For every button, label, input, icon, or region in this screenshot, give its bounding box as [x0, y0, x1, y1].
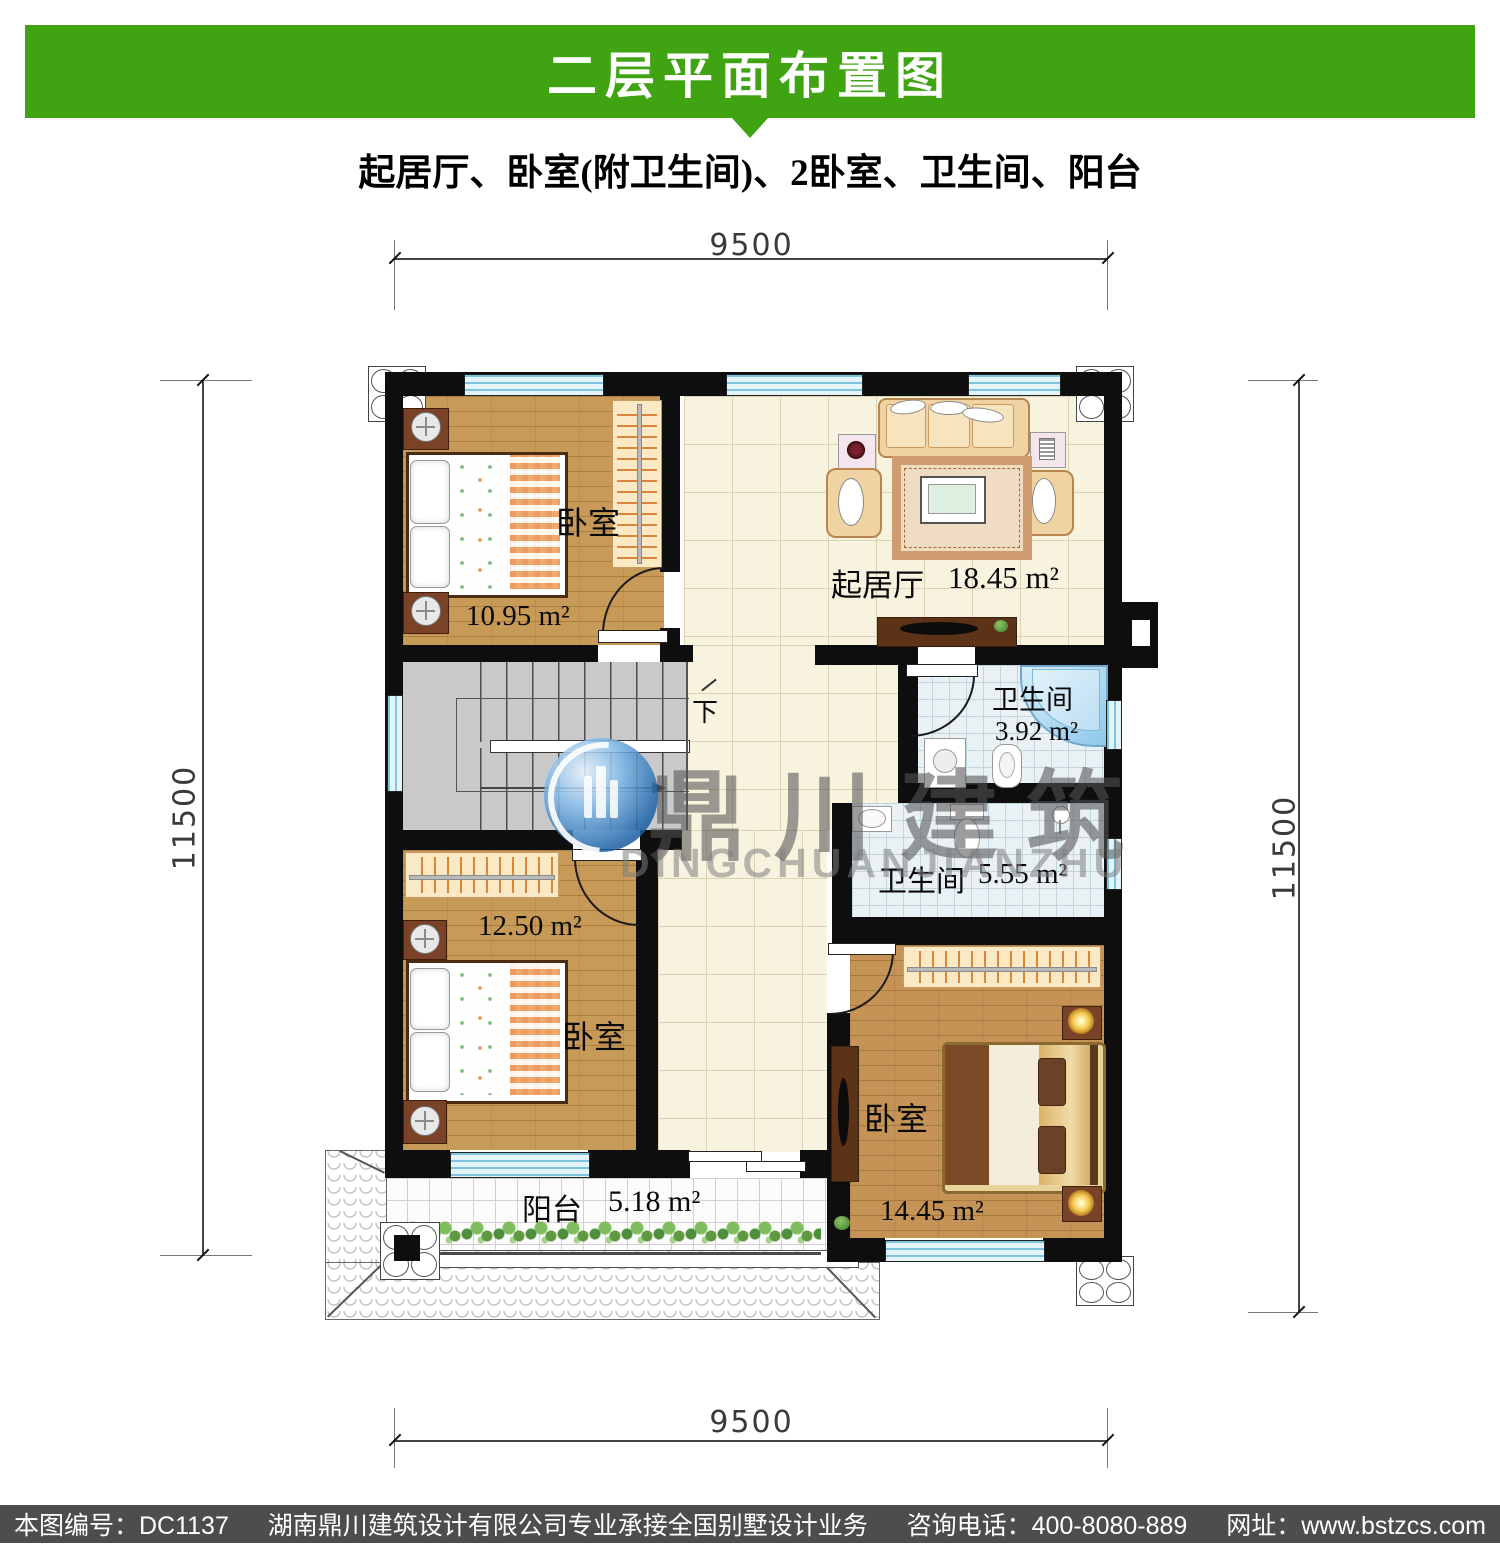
plant-icon	[834, 1216, 850, 1230]
lamp-icon	[411, 596, 441, 626]
door-leaf-bathroom-small	[906, 664, 978, 677]
wall-bedroom3-top	[832, 917, 1122, 945]
dim-ext	[1248, 380, 1318, 381]
header-pointer-triangle	[732, 118, 768, 138]
watermark-logo-building	[610, 780, 618, 818]
wardrobe-rod	[907, 967, 1097, 972]
lamp-glow-icon	[1068, 1008, 1094, 1034]
lamp-icon	[410, 1106, 440, 1136]
wardrobe-bedroom3	[903, 946, 1101, 988]
door-leaf-bedroom1	[598, 630, 668, 643]
label-bedroom2-area: 12.50 m²	[478, 910, 582, 943]
wall-bedroom2-bottom-b	[588, 1150, 690, 1178]
dim-ext	[1248, 1312, 1318, 1313]
pillow	[410, 968, 450, 1030]
dim-left-label: 11500	[168, 738, 203, 898]
wall-stairs-bottom-a	[385, 830, 573, 850]
lamp-icon	[410, 924, 440, 954]
corner-ornament	[1076, 1256, 1134, 1306]
footer-company: 湖南鼎川建筑设计有限公司专业承接全国别墅设计业务	[268, 1506, 868, 1542]
flower-decor-icon	[847, 441, 865, 459]
bed3-footer-throw	[945, 1045, 989, 1185]
pillow	[1038, 1126, 1066, 1174]
armchair-cushion	[1032, 478, 1056, 524]
pillow	[410, 526, 450, 588]
footer-website: 网址：www.bstzcs.com	[1226, 1506, 1486, 1542]
window-bedroom2-bottom	[450, 1152, 590, 1178]
label-balcony-area: 5.18 m²	[608, 1185, 700, 1219]
footer-drawing-no: 本图编号：DC1137	[14, 1506, 229, 1542]
wall-bedroom3-bottom-a	[850, 1238, 885, 1262]
watermark-logo-building	[584, 776, 592, 818]
dim-ext	[160, 380, 252, 381]
footer-bar: 本图编号：DC1137 湖南鼎川建筑设计有限公司专业承接全国别墅设计业务 咨询电…	[0, 1505, 1500, 1543]
label-bedroom2-name: 卧室	[562, 1012, 626, 1058]
bed-plaid-throw	[510, 963, 560, 1095]
label-bath1-name: 卫生间	[992, 678, 1073, 717]
watermark-en-text: DINGCHUANJIANZHU	[620, 840, 1128, 887]
dim-top-label: 9500	[395, 228, 1108, 263]
window-left-stairs	[387, 695, 403, 792]
bed3-headboard	[1090, 1045, 1098, 1185]
header-bar: 二层平面布置图	[25, 25, 1475, 118]
floor-plan-page: 二层平面布置图 起居厅、卧室(附卫生间)、2卧室、卫生间、阳台 9500 950…	[0, 0, 1500, 1545]
wall-living-bottom-b	[975, 645, 1122, 665]
armchair-cushion	[838, 478, 864, 526]
bed-plaid-throw	[510, 455, 560, 589]
label-bedroom3-area: 14.45 m²	[880, 1195, 984, 1228]
sliding-door-balcony-b	[746, 1161, 806, 1172]
pillow	[410, 460, 450, 524]
dim-bottom-line	[395, 1440, 1108, 1442]
plant-icon	[994, 620, 1008, 632]
label-balcony-name: 阳台	[522, 1185, 582, 1229]
plan-subtitle: 起居厅、卧室(附卫生间)、2卧室、卫生间、阳台	[0, 142, 1500, 196]
label-living-name: 起居厅	[831, 560, 924, 605]
radio-icon	[1039, 438, 1055, 460]
lamp-icon	[411, 412, 441, 442]
dim-ext	[160, 1255, 252, 1256]
dim-right-label: 11500	[1268, 768, 1303, 928]
pillow	[1038, 1058, 1066, 1106]
wardrobe-rod	[637, 404, 642, 564]
door-leaf-bedroom3	[828, 943, 896, 955]
balcony-post-core	[394, 1235, 420, 1261]
page-title: 二层平面布置图	[547, 36, 953, 108]
stairs-down-label: 下	[692, 692, 718, 729]
wardrobe-rod	[409, 875, 555, 880]
wall-living-bottom-a	[815, 645, 905, 665]
window-top-living-1	[726, 374, 863, 396]
watermark-logo-building	[596, 766, 606, 818]
bed3-sheet	[989, 1045, 1039, 1185]
wardrobe-bedroom2	[405, 852, 559, 898]
wall-bedroom2-bottom-a	[385, 1150, 450, 1178]
lamp-glow-icon	[1068, 1190, 1094, 1216]
balcony-planter	[397, 1218, 821, 1255]
wall-bedroom2-right	[636, 850, 658, 1152]
pillow	[410, 1032, 450, 1092]
tv-icon	[838, 1078, 849, 1146]
label-bedroom3-name: 卧室	[864, 1094, 928, 1140]
window-top-living-2	[968, 374, 1061, 396]
wall-flue-hole	[1132, 620, 1150, 646]
dim-bottom-label: 9500	[395, 1405, 1108, 1440]
window-top-bedroom1	[464, 374, 604, 396]
window-bedroom3-bottom	[885, 1240, 1045, 1262]
wall-bedroom3-bottom-b	[1043, 1238, 1122, 1262]
wall-stairs-top-stub	[660, 645, 693, 662]
coffee-table-top	[928, 484, 976, 514]
label-bedroom1-area: 10.95 m²	[466, 600, 570, 633]
wall-bedroom1-bottom	[385, 645, 598, 662]
tv-icon	[900, 622, 978, 635]
footer-phone: 咨询电话：400-8080-889	[907, 1506, 1188, 1542]
label-bedroom1-name: 卧室	[556, 498, 620, 544]
label-living-area: 18.45 m²	[948, 560, 1059, 596]
wall-bedroom1-right	[660, 396, 680, 572]
